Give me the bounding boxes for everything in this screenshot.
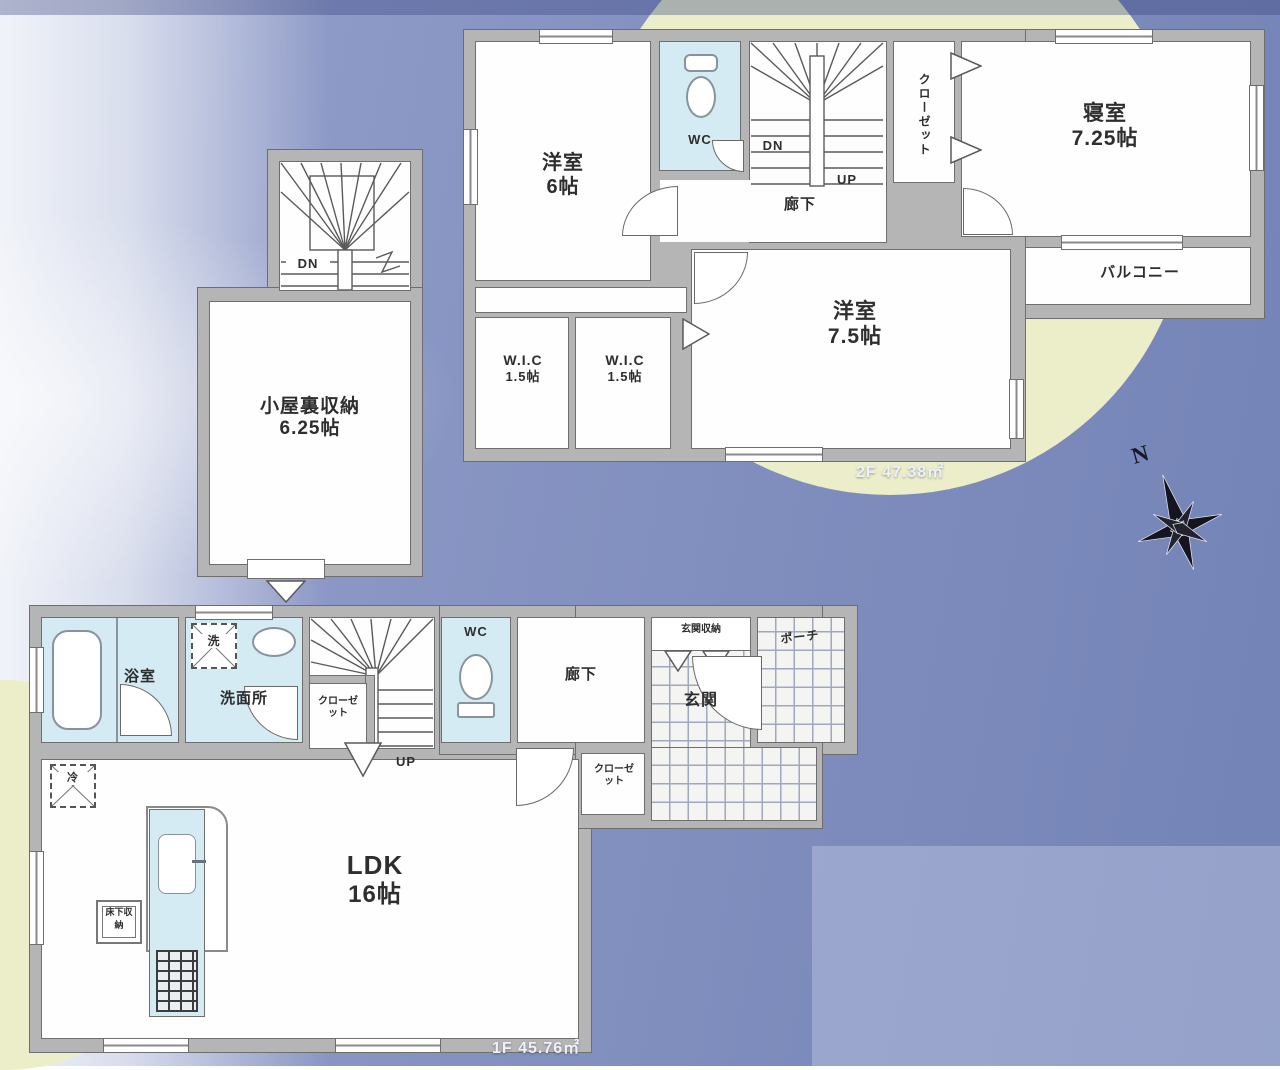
- label-1f-bathroom: 浴室: [108, 668, 172, 686]
- window-mark: [1056, 30, 1152, 43]
- label-1f-hallway: 廊下: [545, 666, 617, 684]
- label-1f-stair-closet: クローゼット: [318, 696, 358, 720]
- room-2f-corridor: [476, 288, 686, 312]
- background-rect-bottom-right: [812, 846, 1280, 1066]
- window-mark: [1010, 380, 1023, 438]
- window-mark: [1062, 236, 1182, 249]
- attic-hatch-mark: [248, 560, 324, 578]
- window-mark: [196, 606, 272, 619]
- label-2f-wic-left: W.I.C1.5帖: [484, 352, 562, 384]
- label-2f-balcony: バルコニー: [1070, 264, 1210, 282]
- folding-door-mark-icon: [950, 52, 982, 80]
- closet-wall: [310, 676, 374, 684]
- closet-wall: [366, 676, 374, 748]
- label-1f-wc: WC: [452, 624, 500, 639]
- window-mark: [726, 448, 822, 461]
- label-2f-hallway: 廊下: [758, 196, 842, 214]
- direction-arrow-icon: [344, 742, 382, 778]
- label-2f-closet: クローゼット: [910, 54, 938, 176]
- label-2f-bedroom: 寝室7.25帖: [1030, 102, 1180, 152]
- window-mark: [336, 1039, 440, 1052]
- faucet-icon: [192, 860, 206, 863]
- folding-door-mark-icon: [682, 318, 710, 350]
- label-1f-washroom: 洗面所: [188, 690, 300, 708]
- sink-icon: [252, 627, 296, 657]
- label-refrigerator: 冷: [58, 772, 88, 785]
- label-2f-up: UP: [826, 172, 868, 187]
- stove-icon: [156, 950, 198, 1012]
- kitchen-sink-icon: [158, 834, 196, 894]
- label-attic-dn: DN: [286, 256, 330, 271]
- window-mark: [104, 1039, 188, 1052]
- window-mark: [30, 648, 43, 712]
- floor1-area-label: 1F 45.76㎡: [492, 1034, 580, 1058]
- label-2f-western6: 洋室6帖: [503, 152, 623, 199]
- window-mark: [30, 852, 43, 944]
- label-1f-ldk: LDK16帖: [300, 850, 450, 909]
- bathtub-icon: [52, 630, 102, 730]
- toilet-bowl-1f-icon: [459, 654, 493, 700]
- label-2f-dn: DN: [752, 138, 794, 153]
- folding-door-mark-icon: [664, 650, 692, 672]
- label-1f-entrance: 玄関: [664, 692, 738, 711]
- label-1f-hall-closet: クローゼット: [592, 764, 636, 788]
- toilet-bowl-2f-icon: [686, 76, 716, 118]
- window-mark: [464, 130, 477, 204]
- toilet-tank-2f-icon: [684, 54, 718, 72]
- folding-door-mark-icon: [950, 136, 982, 164]
- label-entrance-storage: 玄関収納: [654, 624, 748, 636]
- label-attic-storage: 小屋裏収納6.25帖: [230, 396, 390, 441]
- direction-arrow-icon: [266, 580, 306, 604]
- refrigerator-space-icon: [50, 764, 96, 808]
- label-floor-storage: 床下収納: [104, 906, 134, 931]
- window-mark: [1250, 86, 1263, 170]
- window-mark: [540, 30, 612, 43]
- background-top-band: [0, 0, 1280, 15]
- stairs-2f-symbol: [750, 42, 884, 192]
- compass-rose-icon: [1118, 464, 1242, 588]
- label-washer: 洗: [198, 634, 230, 648]
- label-1f-up: UP: [386, 754, 426, 769]
- label-2f-wic-right: W.I.C1.5帖: [586, 352, 664, 384]
- label-2f-western75: 洋室7.5帖: [790, 300, 920, 350]
- room-1f-approach: [652, 748, 816, 820]
- floor2-area-label: 2F 47.38㎡: [856, 458, 944, 482]
- toilet-tank-1f-icon: [457, 702, 495, 718]
